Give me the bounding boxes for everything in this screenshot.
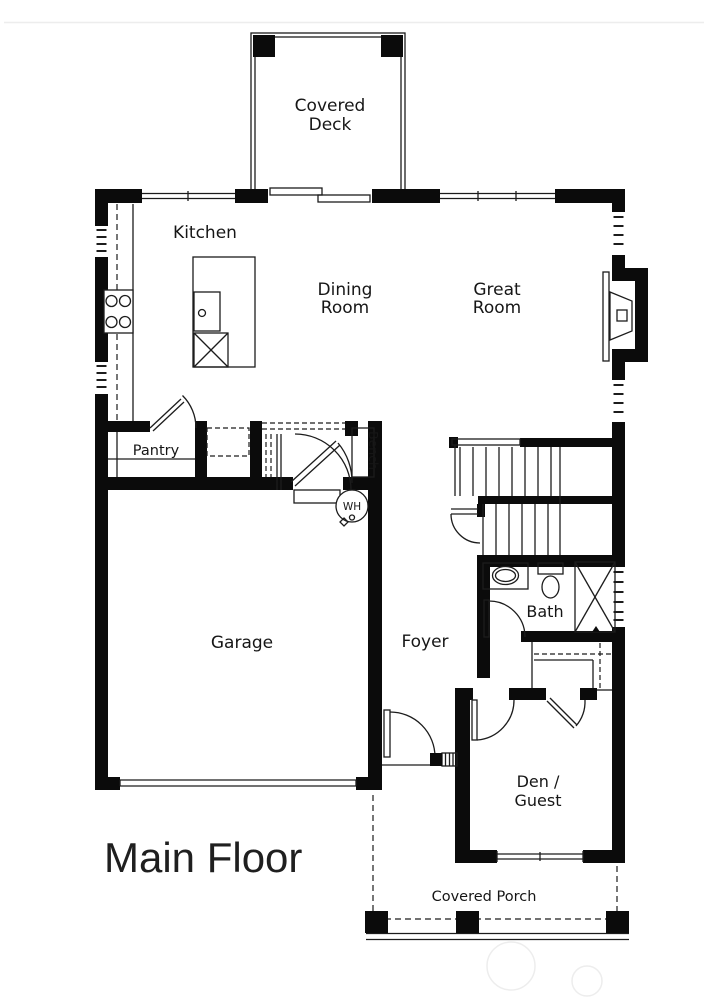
closet-door (547, 698, 585, 728)
label-pantry: Pantry (133, 443, 180, 459)
garage-step (294, 490, 340, 503)
pantry-fixtures (108, 396, 249, 478)
label-den-guest: Den / (517, 772, 560, 791)
label-great-room: Room (473, 298, 521, 318)
window (614, 217, 624, 244)
window (142, 191, 235, 201)
label-covered-deck: Deck (309, 115, 352, 135)
window (97, 230, 107, 251)
floor-plan-drawing: Covered Deck Kitchen Dining Room Great R… (0, 0, 708, 1001)
kitchen-island (193, 257, 255, 367)
toilet (538, 563, 563, 598)
den-door (472, 700, 514, 740)
sliding-door (268, 187, 372, 203)
label-covered-deck: Covered (295, 96, 366, 116)
label-bath: Bath (526, 602, 563, 621)
label-kitchen: Kitchen (173, 223, 237, 243)
shower (575, 562, 615, 632)
garage-door (120, 780, 356, 786)
window (97, 366, 107, 387)
label-garage: Garage (211, 633, 273, 653)
deck-post (381, 35, 403, 57)
watermark-circle (487, 942, 535, 990)
stair-rail (452, 439, 520, 445)
pantry-door (150, 396, 196, 432)
window (440, 191, 555, 201)
window (614, 385, 624, 412)
deck-post (253, 35, 275, 57)
porch-post (365, 911, 388, 933)
window (497, 851, 583, 862)
label-dining-room: Dining (318, 280, 373, 300)
basement-door (451, 509, 480, 543)
front-door (382, 710, 442, 766)
page-title: Main Floor (104, 834, 302, 881)
label-den-guest: Guest (515, 791, 562, 810)
den-closet (532, 642, 612, 728)
covered-porch-structure (365, 795, 629, 940)
floor-plan-page: Covered Deck Kitchen Dining Room Great R… (0, 0, 708, 1001)
label-foyer: Foyer (401, 632, 448, 652)
island-sink (194, 292, 220, 331)
porch-post (606, 911, 629, 933)
bath-door (484, 600, 525, 637)
label-water-heater: WH (343, 501, 361, 513)
label-covered-porch: Covered Porch (432, 889, 537, 905)
label-dining-room: Room (321, 298, 369, 318)
cooktop (104, 290, 133, 333)
label-great-room: Great (473, 280, 521, 300)
bath-fixtures (483, 562, 615, 637)
fireplace (603, 268, 648, 362)
porch-post (456, 911, 479, 933)
watermark-circle (572, 966, 602, 996)
sidelight-window (442, 753, 457, 766)
refrigerator-space (207, 428, 249, 456)
hearth (603, 272, 609, 361)
label-bench: Bench (366, 431, 381, 470)
